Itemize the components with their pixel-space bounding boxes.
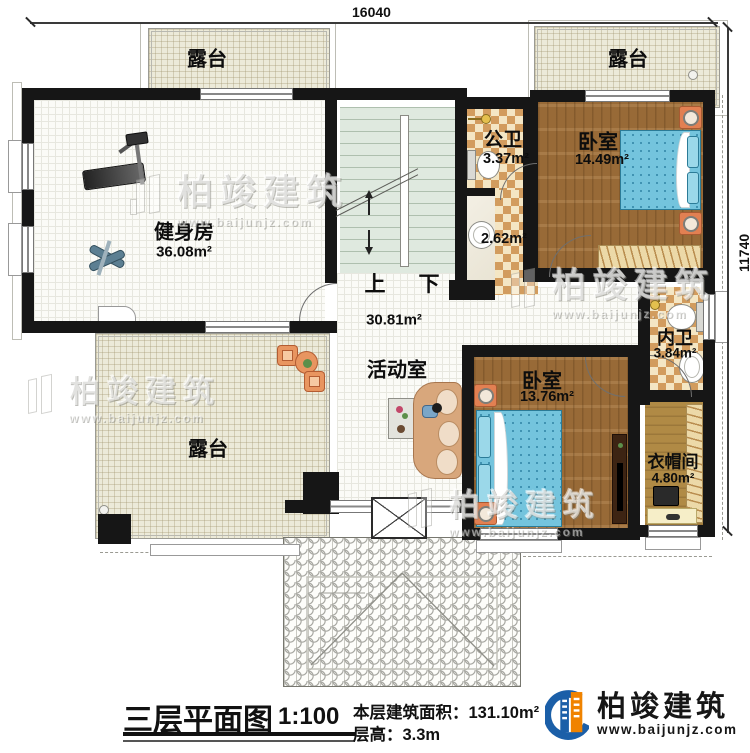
- sofa-cushion: [438, 421, 460, 447]
- label-bedroom-top: 卧室: [578, 126, 618, 155]
- floor-stairs: [340, 107, 458, 273]
- shower-arm: [658, 294, 660, 302]
- area-gym: 36.08m²: [156, 244, 212, 261]
- label-stairs-up: 上: [365, 268, 386, 298]
- terrace-post: [98, 514, 131, 544]
- watermark-logo-icon: [22, 373, 62, 419]
- floor-gym: [34, 100, 325, 321]
- window: [22, 143, 34, 190]
- nightstand: [679, 106, 702, 129]
- floor-terrace-top-left: [148, 28, 330, 94]
- table-plant: [303, 359, 312, 368]
- window: [205, 321, 290, 333]
- wall: [628, 345, 640, 540]
- area-ensuite: 3.84m²: [654, 346, 697, 361]
- label-public-bathroom: 公卫: [484, 125, 522, 152]
- bed-pillow: [687, 172, 699, 204]
- label-stairs-down: 下: [419, 268, 440, 298]
- area-bedroom-bottom: 13.76m²: [520, 389, 574, 405]
- tv-panel: [617, 463, 623, 511]
- desk-mouse: [666, 514, 680, 520]
- skylight-shaft: [371, 497, 427, 539]
- window-sill: [645, 537, 701, 550]
- title-underline-thin: [123, 740, 355, 742]
- window: [200, 88, 293, 100]
- area-public-bathroom: 3.37m²: [483, 151, 529, 167]
- label-terrace-top-right: 露台: [608, 43, 648, 72]
- sofa: [413, 382, 462, 479]
- person-head: [432, 403, 442, 413]
- wall: [337, 88, 467, 100]
- floor-area-text: 本层建筑面积：131.10m²: [353, 699, 539, 723]
- label-gym: 健身房: [154, 216, 214, 245]
- wall: [325, 100, 337, 283]
- window-sill: [8, 223, 22, 276]
- label-cloakroom: 衣帽间: [648, 448, 699, 473]
- dimension-right-value: 11740: [736, 234, 750, 272]
- window: [480, 528, 558, 540]
- floor-plan: 露台 露台 健身房 36.08m² 公卫 3.37m² 2.62m² 卧室 14…: [0, 0, 750, 753]
- table-flower: [402, 413, 408, 419]
- terrace-drain: [688, 70, 698, 80]
- window-sill: [476, 540, 562, 553]
- treadmill-belt: [82, 162, 146, 190]
- terrace-chair: [304, 371, 325, 392]
- stair-down-arrow: [365, 247, 373, 255]
- company-logo: 柏竣建筑 www.baijunjz.com: [545, 686, 738, 744]
- wall: [22, 88, 34, 333]
- wall: [462, 345, 640, 357]
- bed-pillow: [687, 136, 699, 168]
- table-flower: [396, 406, 403, 413]
- tv-cabinet-bedroom-bottom: [612, 434, 627, 524]
- area-activity-room: 30.81m²: [366, 312, 422, 329]
- dimension-line-top: [30, 22, 718, 24]
- dimension-line-right: [727, 28, 729, 533]
- window: [648, 525, 698, 537]
- stair-arrow-line: [368, 230, 370, 248]
- wall: [449, 280, 495, 300]
- table-bowl: [397, 425, 405, 433]
- wall: [462, 188, 495, 196]
- window: [703, 294, 715, 340]
- cabinet-knob: [618, 443, 623, 448]
- label-activity-room: 活动室: [367, 354, 427, 383]
- nightstand: [474, 502, 497, 525]
- area-bedroom-top: 14.49m²: [575, 152, 629, 168]
- stair-stringer: [400, 115, 409, 267]
- cloakroom-desk: [647, 508, 697, 524]
- label-terrace-top-left: 露台: [187, 43, 227, 72]
- wall: [455, 97, 467, 300]
- dumbbell-rack: [86, 238, 130, 278]
- company-logo-icon: [545, 686, 589, 744]
- label-terrace-bottom-left: 露台: [188, 433, 228, 462]
- window: [22, 226, 34, 273]
- coffee-table: [388, 398, 415, 439]
- nightstand: [679, 212, 702, 235]
- plan-scale: 1:100: [278, 703, 339, 731]
- shower-head-icon: [481, 114, 491, 124]
- bed-pillow: [478, 416, 491, 458]
- floor-height-text: 层高：3.3m: [353, 721, 440, 745]
- shower-arm: [468, 118, 482, 120]
- company-url: www.baijunjz.com: [597, 722, 738, 737]
- sofa-cushion: [436, 449, 458, 475]
- toilet-tank: [467, 150, 476, 180]
- window: [424, 500, 460, 513]
- wall: [462, 345, 474, 540]
- roof-hip-lines: [283, 537, 521, 687]
- treadmill: [76, 131, 156, 206]
- dimension-top-value: 16040: [352, 4, 391, 20]
- company-name: 柏竣建筑: [597, 693, 738, 722]
- bed-pillow: [478, 464, 491, 506]
- area-shower-room: 2.62m²: [481, 231, 527, 247]
- stair-arrow-line: [368, 197, 370, 215]
- window-sill: [8, 140, 22, 193]
- window-sill: [150, 544, 300, 556]
- left-eave-outline: [12, 82, 22, 340]
- title-underline-thick: [123, 732, 355, 736]
- nightstand: [474, 384, 497, 407]
- area-cloakroom: 4.80m²: [652, 471, 695, 486]
- window: [330, 500, 372, 513]
- laptop: [653, 486, 679, 506]
- window: [585, 90, 670, 102]
